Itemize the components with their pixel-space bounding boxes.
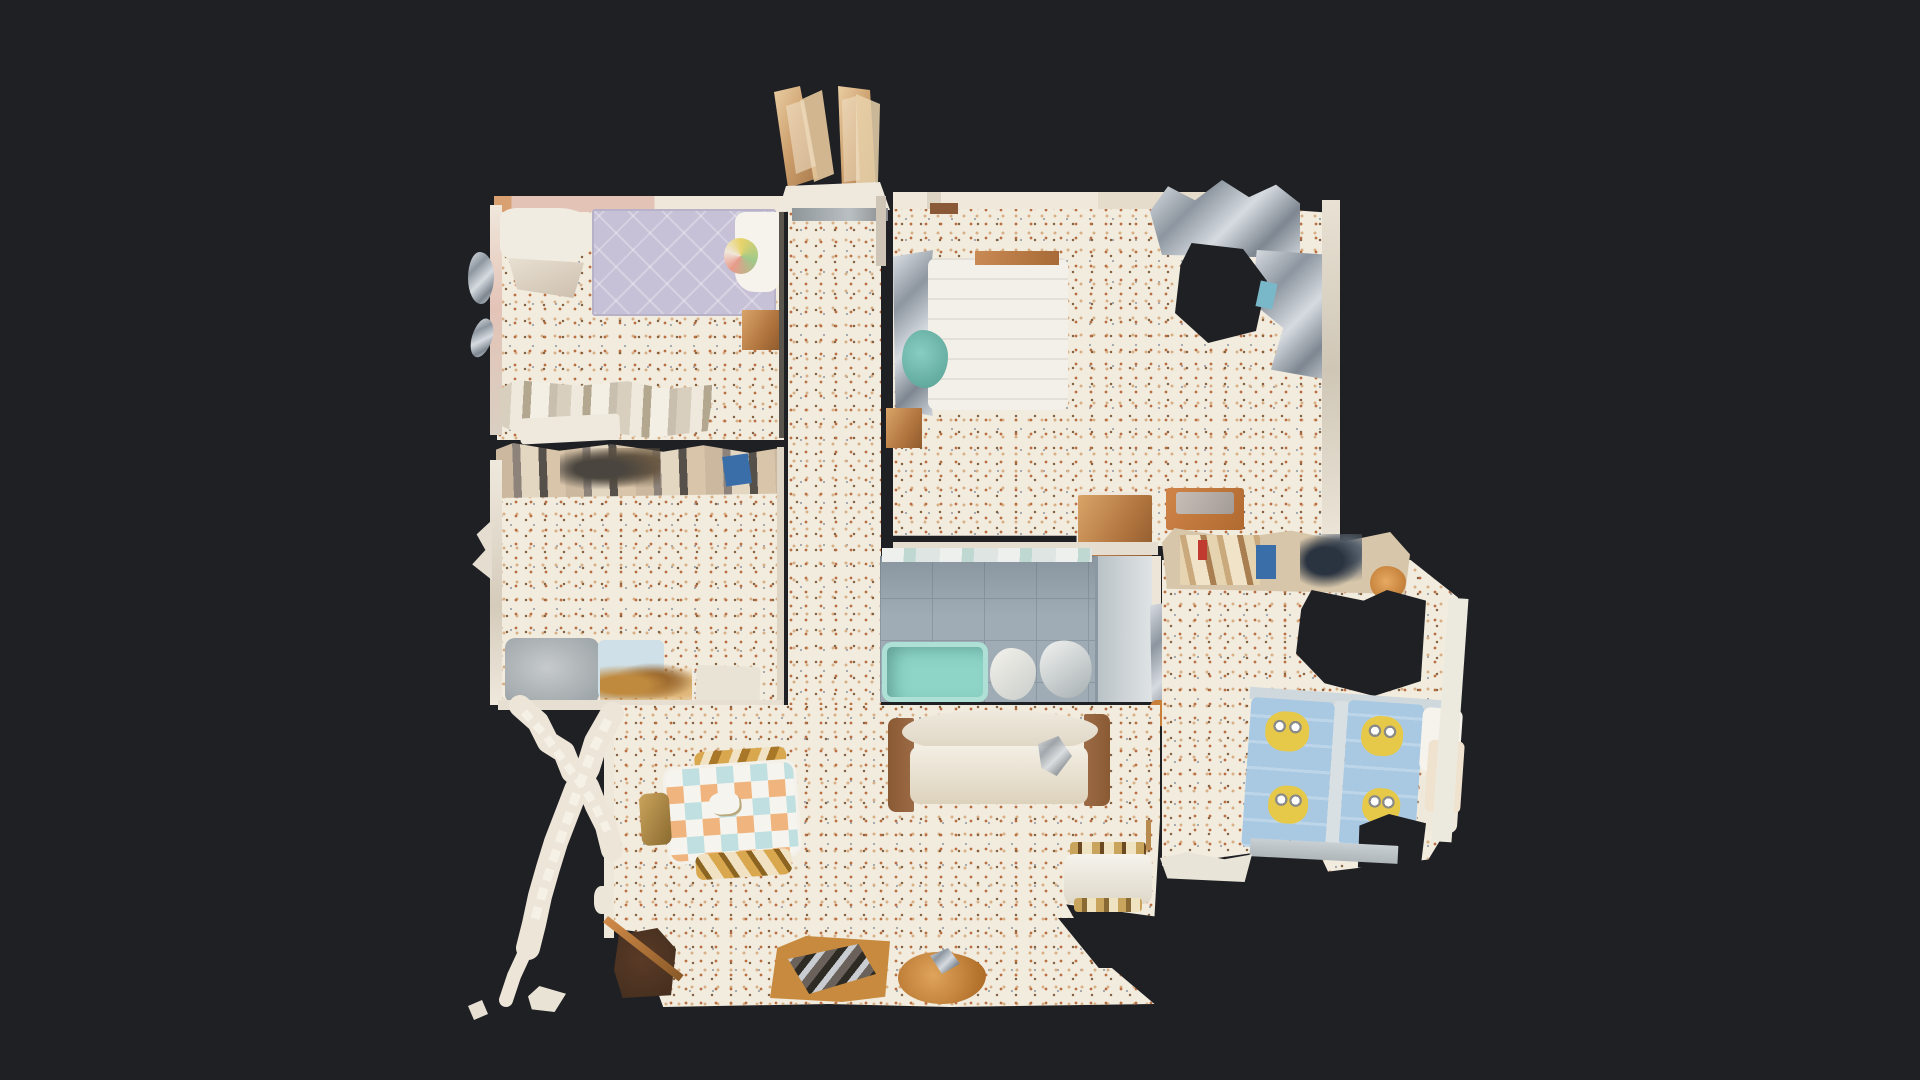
floorplan-model[interactable] xyxy=(0,0,1920,1080)
bathroom-top-glitch xyxy=(882,548,1092,562)
wardrobe-mirror-glitch xyxy=(1150,180,1300,258)
railing-scrap-dot xyxy=(468,1000,488,1020)
hallway-lintel-beam xyxy=(792,208,888,221)
dollhouse-viewport[interactable] xyxy=(0,0,1920,1080)
master-bed-top-shelf xyxy=(975,251,1059,265)
shower-section xyxy=(1095,556,1160,702)
armchair-seat xyxy=(1064,854,1152,904)
room3-left-wall xyxy=(490,460,502,705)
bedroom1-dresser-piece xyxy=(519,413,620,444)
staircase-railing xyxy=(440,690,660,1030)
bedroom1-right-wall-edge xyxy=(779,210,784,438)
master-nightstand xyxy=(886,408,922,448)
bathroom-tile-shade xyxy=(880,556,1095,616)
room3-dark-clutter xyxy=(560,448,660,490)
railing-tail-scrap xyxy=(506,950,526,1000)
dining-table-group xyxy=(636,742,824,880)
kids-red-item xyxy=(1198,540,1207,560)
armchair-striped-bottom xyxy=(1074,898,1142,912)
sofa-group xyxy=(888,710,1110,818)
hallway-floor xyxy=(788,196,881,712)
hallway-door-jamb xyxy=(876,196,886,266)
master-double-bed xyxy=(928,258,1068,410)
master-right-wall xyxy=(1322,200,1340,540)
armchair-group xyxy=(1062,842,1154,918)
master-dresser-orange-top xyxy=(1176,492,1234,514)
room3-blue-item xyxy=(722,453,752,486)
kids-navy-clutter xyxy=(1300,534,1362,588)
room3-right-wall xyxy=(777,447,784,705)
entrance-door-right xyxy=(838,86,880,190)
kids-shelf-books xyxy=(1180,535,1260,585)
armchair-wood-edge xyxy=(1146,820,1151,850)
teal-bathtub xyxy=(882,642,988,702)
kids-blue-box xyxy=(1256,545,1276,579)
master-wall-slot xyxy=(930,203,958,214)
mesh-scrap-left3 xyxy=(470,520,492,580)
bedroom1-nightstand xyxy=(742,310,780,350)
tablecloth-fold xyxy=(709,791,740,815)
entrance-door-left xyxy=(774,86,834,188)
